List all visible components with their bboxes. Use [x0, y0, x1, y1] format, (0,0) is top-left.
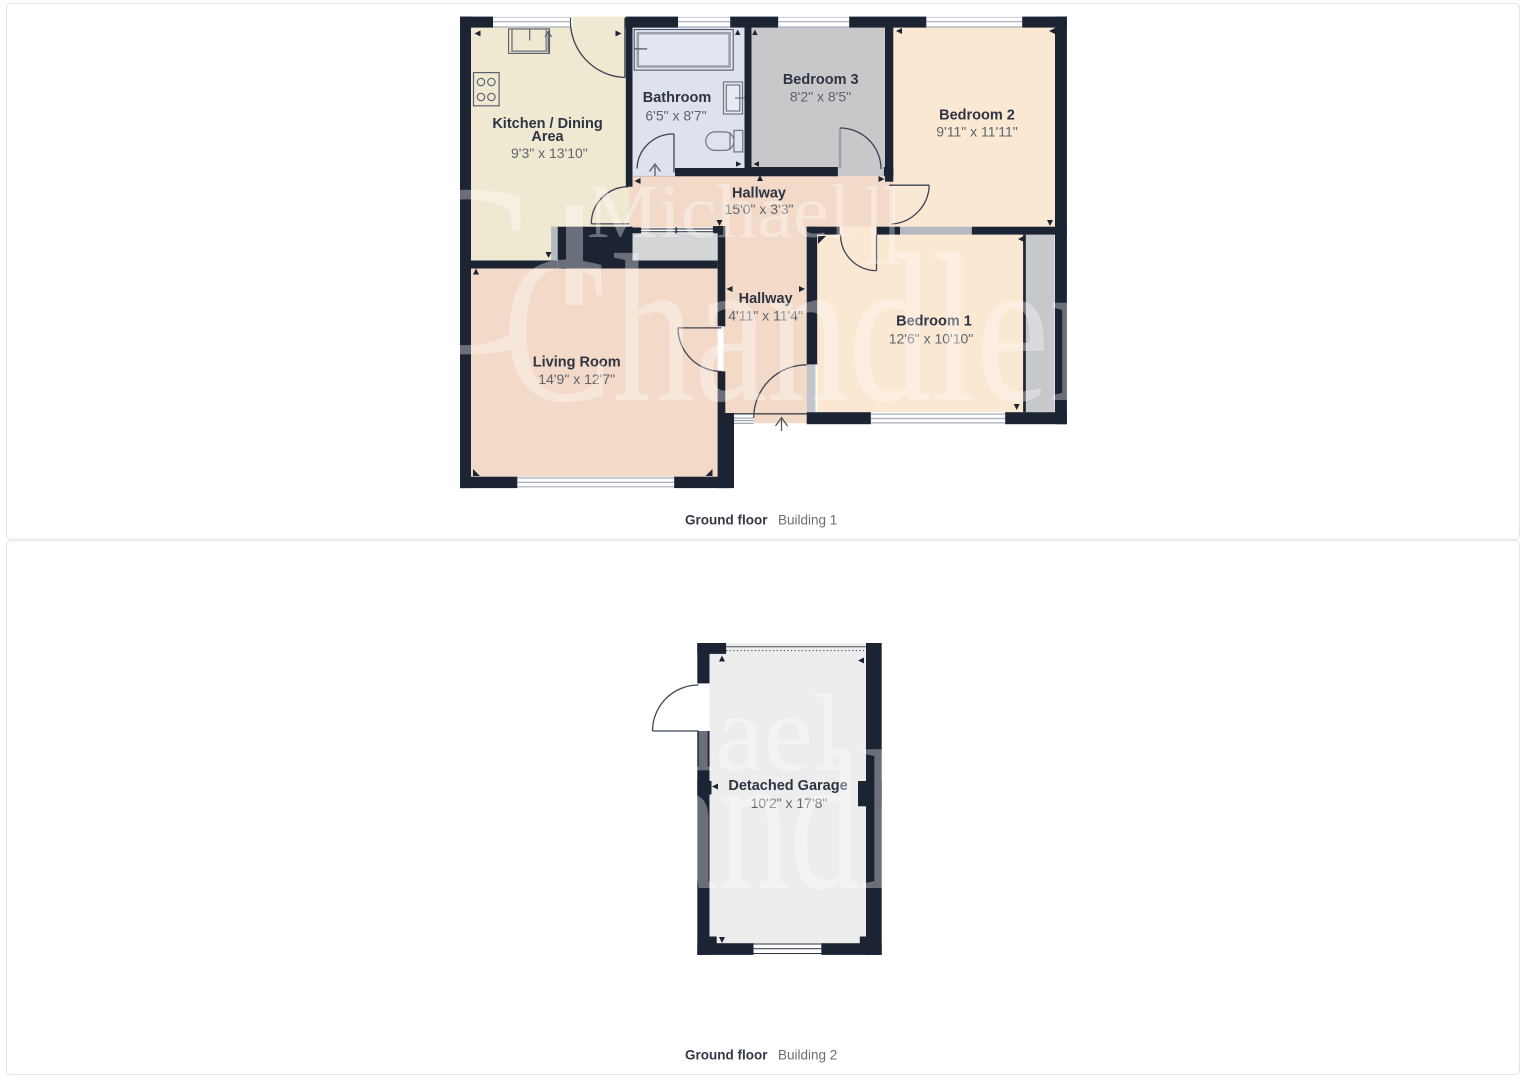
svg-text:Ground floor: Ground floor — [685, 513, 768, 528]
svg-text:8'2" x 8'5": 8'2" x 8'5" — [790, 89, 851, 105]
svg-text:Bedroom 3: Bedroom 3 — [783, 72, 859, 88]
svg-text:Ground floor: Ground floor — [685, 1048, 768, 1063]
svg-text:Chandler: Chandler — [503, 211, 1104, 446]
svg-text:Bathroom: Bathroom — [643, 90, 711, 106]
svg-text:Building 1: Building 1 — [778, 513, 837, 528]
svg-text:6'5" x 8'7": 6'5" x 8'7" — [645, 108, 706, 124]
svg-text:Building 2: Building 2 — [778, 1048, 837, 1063]
svg-text:9'11" x 11'11": 9'11" x 11'11" — [936, 124, 1017, 140]
svg-text:Bedroom 2: Bedroom 2 — [939, 108, 1015, 124]
